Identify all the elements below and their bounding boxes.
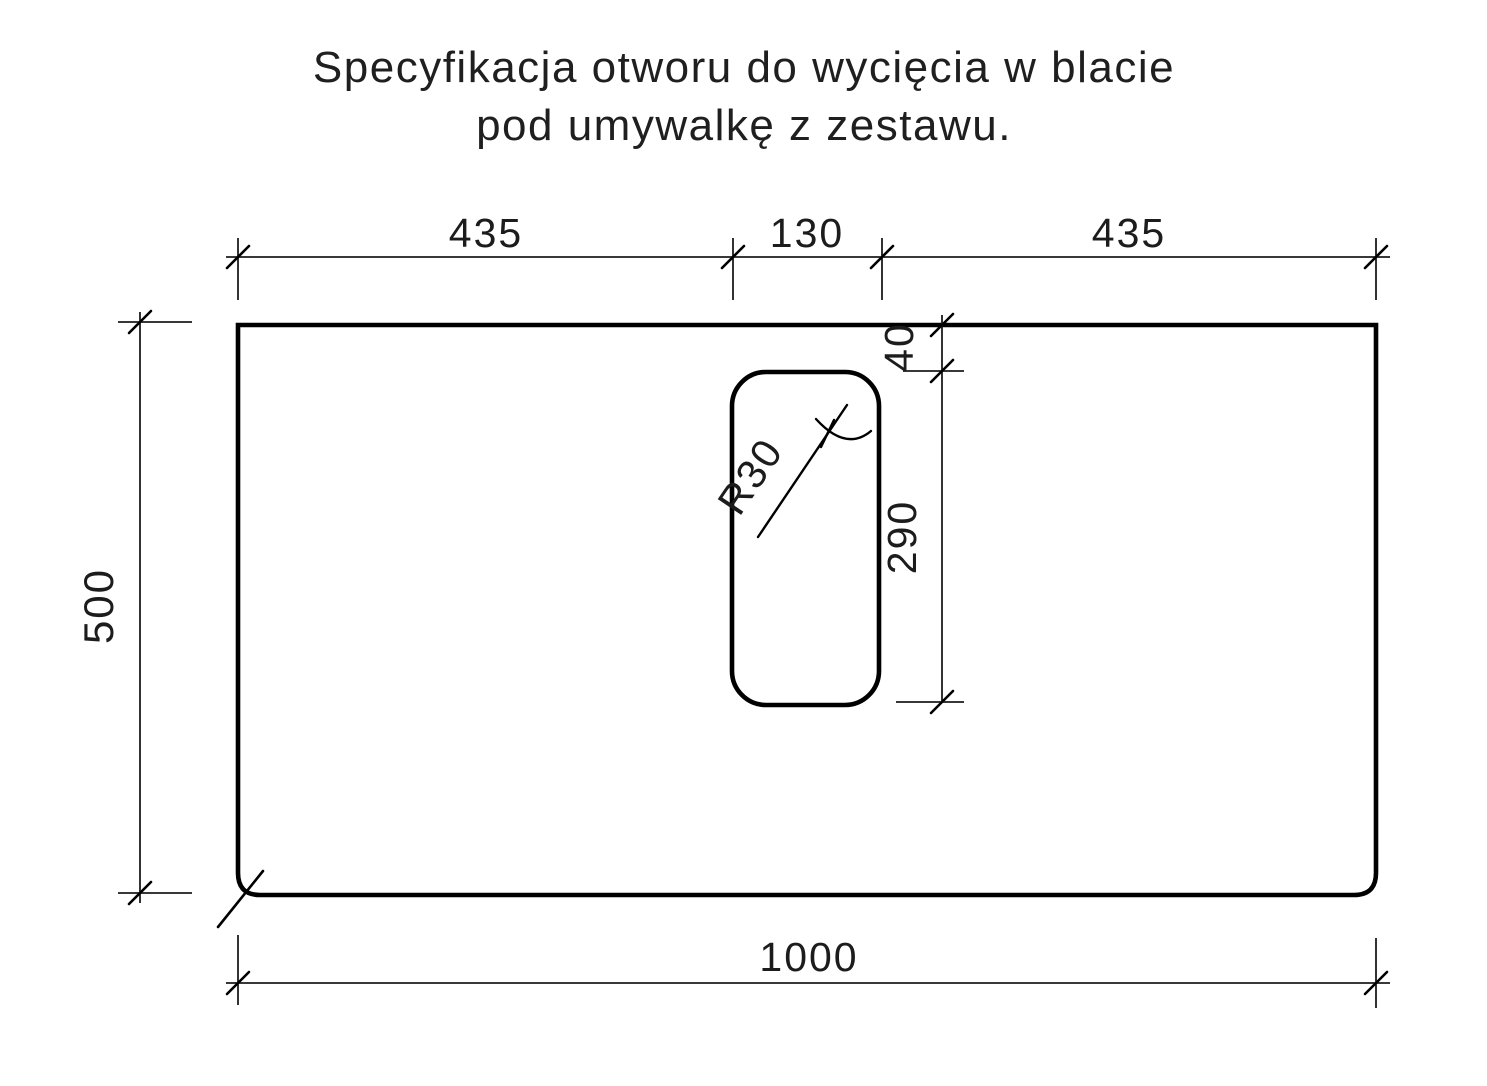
- countertop-outline: [238, 325, 1376, 895]
- dimension-label-130: 130: [770, 210, 844, 256]
- dimension-label-290: 290: [879, 500, 925, 574]
- bottom-dimension: 1000: [218, 871, 1390, 1008]
- dimension-label-435-left: 435: [449, 210, 523, 256]
- dimension-label-r30: R30: [709, 430, 793, 523]
- left-dimension: 500: [75, 311, 192, 904]
- drawing-page: Specyfikacja otworu do wycięcia w blacie…: [0, 0, 1487, 1086]
- top-dimension-chain: 435 130 435: [226, 210, 1390, 300]
- title-line-1: Specyfikacja otworu do wycięcia w blacie: [313, 43, 1175, 92]
- dimension-label-500: 500: [75, 568, 122, 644]
- dimension-label-435-right: 435: [1092, 210, 1166, 256]
- sink-cutout-outline: [732, 372, 879, 705]
- cutout-vertical-dimensions: 40 290: [876, 314, 964, 713]
- radius-arc: [816, 419, 871, 439]
- title-line-2: pod umywalkę z zestawu.: [476, 101, 1012, 150]
- dimension-label-40: 40: [876, 322, 922, 372]
- drawing-title: Specyfikacja otworu do wycięcia w blacie…: [313, 43, 1175, 150]
- dimension-label-1000: 1000: [759, 934, 858, 980]
- technical-drawing: Specyfikacja otworu do wycięcia w blacie…: [0, 0, 1487, 1086]
